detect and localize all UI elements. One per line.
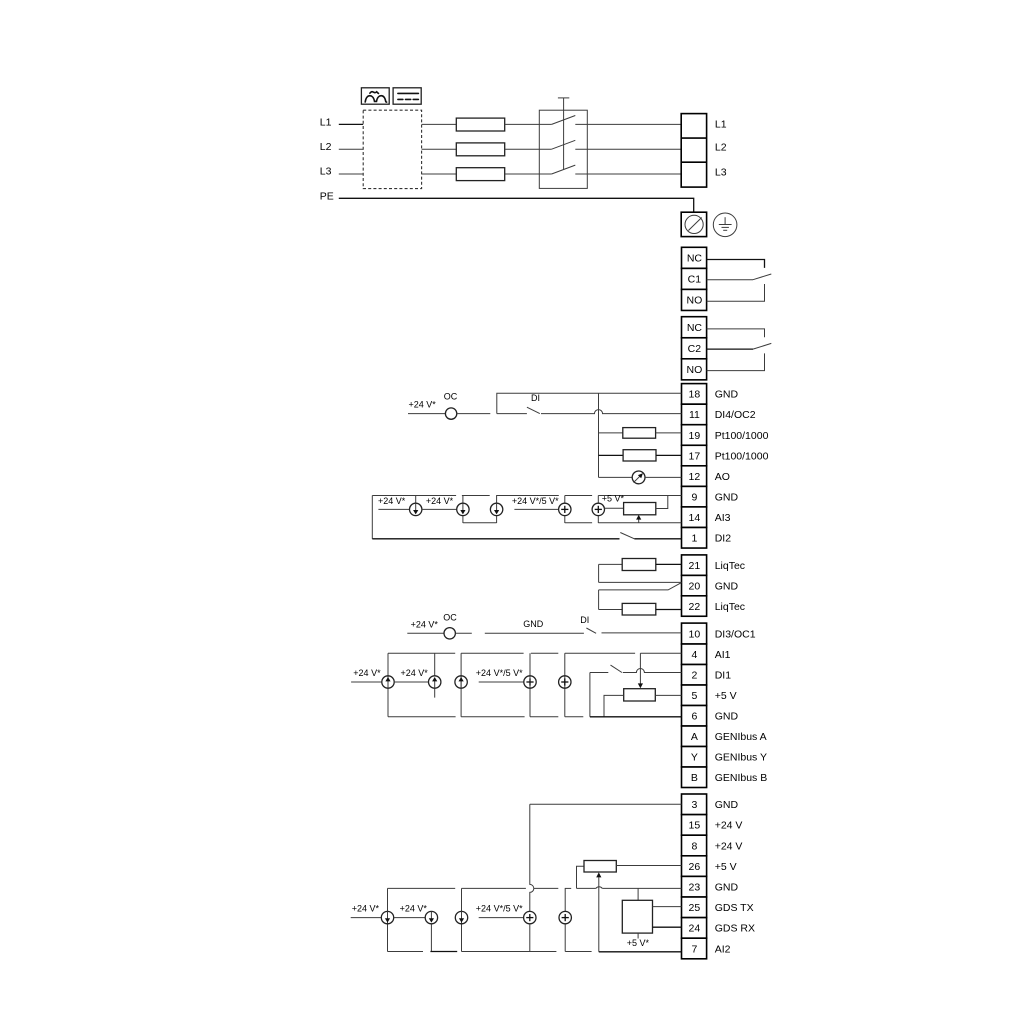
svg-text:DI3/OC1: DI3/OC1: [715, 628, 756, 640]
svg-text:L3: L3: [715, 167, 727, 179]
svg-text:LiqTec: LiqTec: [715, 560, 745, 572]
svg-text:14: 14: [689, 512, 701, 524]
svg-text:GND: GND: [715, 580, 739, 592]
svg-text:AI1: AI1: [715, 649, 731, 661]
svg-text:L2: L2: [320, 141, 332, 153]
svg-text:A: A: [691, 731, 698, 743]
svg-text:4: 4: [691, 649, 697, 661]
svg-text:DI1: DI1: [715, 670, 732, 682]
svg-text:+24 V*: +24 V*: [378, 496, 406, 506]
svg-text:Pt100/1000: Pt100/1000: [715, 450, 769, 462]
svg-text:2: 2: [691, 670, 697, 682]
svg-text:GENIbus B: GENIbus B: [715, 772, 768, 784]
svg-text:NC: NC: [687, 322, 703, 334]
svg-text:NO: NO: [687, 295, 703, 307]
svg-text:PE: PE: [320, 191, 334, 203]
svg-text:+24 V*: +24 V*: [400, 904, 428, 914]
svg-text:GND: GND: [523, 619, 544, 629]
svg-text:5: 5: [691, 690, 697, 702]
svg-text:Y: Y: [691, 752, 698, 764]
svg-text:11: 11: [689, 409, 700, 421]
svg-text:+24 V*: +24 V*: [426, 496, 454, 506]
svg-text:DI2: DI2: [715, 533, 732, 545]
svg-text:+24 V*/5 V*: +24 V*/5 V*: [476, 668, 523, 678]
svg-text:21: 21: [689, 560, 701, 572]
svg-text:+5 V: +5 V: [715, 690, 737, 702]
svg-text:L1: L1: [320, 116, 332, 128]
svg-text:GDS RX: GDS RX: [715, 923, 755, 935]
svg-text:GND: GND: [715, 389, 739, 401]
svg-text:AI3: AI3: [715, 512, 731, 524]
svg-text:8: 8: [691, 840, 697, 852]
svg-text:25: 25: [689, 902, 701, 914]
svg-text:DI4/OC2: DI4/OC2: [715, 409, 756, 421]
svg-text:24: 24: [689, 923, 701, 935]
svg-text:19: 19: [689, 430, 701, 442]
svg-text:26: 26: [689, 861, 701, 873]
svg-text:Pt100/1000: Pt100/1000: [715, 430, 769, 442]
svg-text:DI: DI: [580, 615, 589, 625]
svg-text:GENIbus A: GENIbus A: [715, 731, 767, 743]
svg-text:23: 23: [689, 882, 701, 894]
svg-text:20: 20: [689, 580, 701, 592]
svg-text:GND: GND: [715, 491, 739, 503]
svg-text:9: 9: [691, 491, 697, 503]
svg-text:3: 3: [691, 799, 697, 811]
svg-text:+24 V*: +24 V*: [353, 668, 381, 678]
svg-text:+24 V: +24 V: [715, 820, 743, 832]
svg-text:C2: C2: [688, 343, 702, 355]
svg-text:L1: L1: [715, 118, 727, 130]
svg-text:+24 V*: +24 V*: [401, 668, 429, 678]
svg-text:LiqTec: LiqTec: [715, 601, 745, 613]
svg-text:22: 22: [689, 601, 701, 613]
svg-text:OC: OC: [444, 392, 458, 402]
svg-text:GND: GND: [715, 711, 739, 723]
svg-text:C1: C1: [688, 274, 702, 286]
svg-text:+24 V*: +24 V*: [352, 904, 380, 914]
svg-text:6: 6: [691, 711, 697, 723]
svg-text:+24 V*: +24 V*: [411, 619, 439, 629]
svg-text:1: 1: [691, 533, 697, 545]
svg-text:7: 7: [691, 943, 697, 955]
svg-text:AO: AO: [715, 471, 730, 483]
svg-text:12: 12: [689, 471, 701, 483]
svg-text:L3: L3: [320, 166, 332, 178]
svg-text:+5 V*: +5 V*: [602, 494, 625, 504]
svg-text:17: 17: [689, 450, 701, 462]
svg-text:18: 18: [689, 389, 701, 401]
svg-text:GDS TX: GDS TX: [715, 902, 754, 914]
svg-text:DI: DI: [531, 393, 540, 403]
svg-text:10: 10: [689, 628, 701, 640]
svg-text:OC: OC: [443, 613, 457, 623]
svg-text:+5 V*: +5 V*: [627, 938, 650, 948]
svg-text:+5 V: +5 V: [715, 861, 737, 873]
svg-text:+24 V*: +24 V*: [409, 400, 437, 410]
svg-text:+24 V: +24 V: [715, 840, 743, 852]
svg-text:GND: GND: [715, 882, 739, 894]
svg-text:+24 V*/5 V*: +24 V*/5 V*: [476, 904, 523, 914]
svg-text:+24 V*/5 V*: +24 V*/5 V*: [512, 496, 559, 506]
svg-text:15: 15: [689, 820, 701, 832]
svg-text:L2: L2: [715, 142, 727, 154]
svg-text:NO: NO: [687, 364, 703, 376]
svg-text:GENIbus Y: GENIbus Y: [715, 752, 767, 764]
svg-text:B: B: [691, 772, 698, 784]
svg-text:NC: NC: [687, 253, 703, 265]
svg-text:AI2: AI2: [715, 943, 731, 955]
svg-text:GND: GND: [715, 799, 739, 811]
